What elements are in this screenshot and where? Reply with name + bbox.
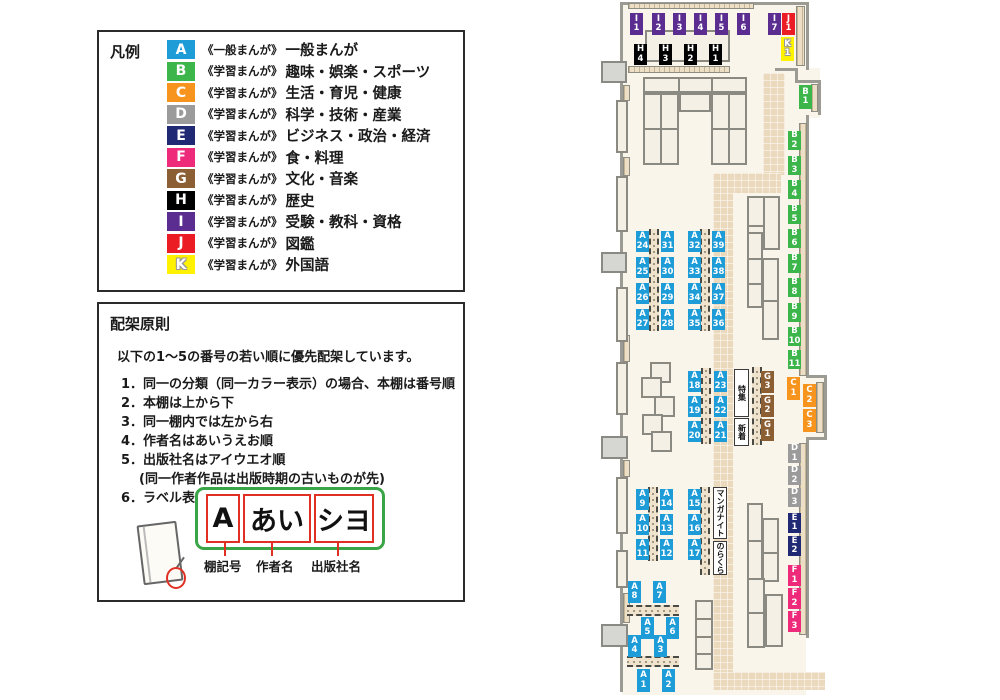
shelf-label-e1: E 1	[788, 513, 801, 533]
shelf-label-a25: A 25	[636, 257, 649, 278]
legend-row-f: F《学習まんが》食・料理	[167, 147, 431, 169]
door-fixture	[601, 252, 627, 273]
shelf-label-i2: I 2	[652, 13, 665, 35]
shelf-label-a18: A 18	[688, 371, 701, 392]
shelf-divider	[678, 78, 680, 92]
legend-scope: 《学習まんが》	[202, 192, 283, 208]
shelf-label-a23: A 23	[714, 371, 727, 392]
map-sign-マンガナイト: マンガナイト	[713, 487, 727, 539]
legend-row-d: D《学習まんが》科学・技術・産業	[167, 104, 431, 126]
wall-shelf-left	[616, 477, 628, 534]
shelf-label-a31: A 31	[661, 231, 674, 252]
shelf-row-a7-a8	[627, 605, 679, 616]
shelf-label-a14: A 14	[660, 489, 673, 510]
shelf-label-h3: H 3	[659, 44, 672, 65]
principles-rule-5: 5．出版社名はアイウエオ順	[121, 451, 459, 470]
shelf-label-b4: B 4	[788, 180, 801, 199]
shelf-label-a4: A 4	[628, 635, 641, 657]
shelf-label-d3: D 3	[788, 488, 801, 507]
category-chip-k: K	[167, 255, 195, 274]
principles-title: 配架原則	[110, 313, 170, 334]
legend-row-i: I《学習まんが》受験・教科・資格	[167, 211, 431, 233]
legend-row-e: E《学習まんが》ビジネス・政治・経済	[167, 125, 431, 147]
shelf-label-a37: A 37	[712, 283, 725, 304]
legend-scope: 《学習まんが》	[202, 128, 283, 144]
shelf-label-b1: B 1	[799, 85, 812, 109]
category-chip-f: F	[167, 148, 195, 167]
shelf-label-b6: B 6	[788, 229, 801, 248]
shelf-label-k1: K 1	[781, 37, 794, 61]
example-connector-line	[224, 543, 226, 556]
shelf-row-a3-a4	[627, 656, 679, 667]
shelf-label-f3: F 3	[788, 611, 801, 632]
shelf-label-a34: A 34	[688, 283, 701, 304]
legend-row-g: G《学習まんが》文化・音楽	[167, 168, 431, 190]
shelf-label-e2: E 2	[788, 536, 801, 556]
shelf-divider	[712, 128, 746, 130]
shelf-label-a39: A 39	[712, 231, 725, 252]
shelf-label-a11: A 11	[636, 539, 649, 560]
shelf-divider	[748, 258, 762, 260]
shelf-label-a9: A 9	[636, 489, 649, 510]
shelf-block-u-middle	[679, 93, 711, 112]
shelving-principles-panel: 配架原則 以下の1～5の番号の若い順に優先配架しています。 1．同一の分類（同一…	[97, 302, 465, 602]
principles-rule-1: 1．同一の分類（同一カラー表示）の場合、本棚は番号順	[121, 375, 459, 394]
shelf-label-a5: A 5	[641, 617, 654, 639]
wall-shelf-left	[616, 362, 628, 415]
example-caption-shelf-code: 棚記号	[204, 556, 242, 575]
book-spine	[143, 527, 152, 583]
category-chip-c: C	[167, 83, 195, 102]
shelf-label-a12: A 12	[660, 539, 673, 560]
shelf-divider	[748, 540, 762, 542]
principles-rule-2: 2．本棚は上から下	[121, 394, 459, 413]
shelf-label-a30: A 30	[661, 257, 674, 278]
shelf-label-b8: B 8	[788, 278, 801, 297]
shelf-divider	[696, 653, 712, 655]
walkway-bottom	[713, 672, 825, 690]
shelf-label-b7: B 7	[788, 254, 801, 273]
legend-panel: 凡例 A《一般まんが》一般まんが B《学習まんが》趣味・娯楽・スポーツ C《学習…	[97, 30, 465, 292]
shelf-label-h2: H 2	[684, 44, 697, 65]
legend-scope: 《学習まんが》	[202, 171, 283, 187]
library-floor-map-poster: 凡例 A《一般まんが》一般まんが B《学習まんが》趣味・娯楽・スポーツ C《学習…	[0, 0, 1000, 700]
door-fixture	[601, 61, 627, 83]
label-publisher-box: シヨ	[314, 494, 374, 543]
example-connector-line	[337, 543, 339, 556]
example-caption-author: 作者名	[256, 556, 294, 575]
shelf-label-g1: G 1	[761, 419, 774, 441]
legend-category: 文化・音楽	[286, 168, 359, 189]
shelf-label-a26: A 26	[636, 283, 649, 304]
legend-scope: 《学習まんが》	[202, 63, 283, 79]
shelf-label-d1: D 1	[788, 444, 801, 463]
legend-category: ビジネス・政治・経済	[286, 125, 431, 146]
shelf-label-i1: I 1	[630, 13, 643, 35]
category-chip-a: A	[167, 40, 195, 59]
shelf-label-a27: A 27	[636, 309, 649, 330]
legend-title: 凡例	[110, 41, 140, 62]
shelf-label-h1: H 1	[709, 44, 722, 65]
map-sign-特集: 特集	[734, 369, 749, 417]
map-wall-segment	[818, 83, 821, 115]
shelf-row-a9-a14	[648, 487, 658, 561]
shelf-divider	[748, 612, 764, 614]
legend-category: 一般まんが	[286, 39, 359, 60]
wall-shelf-left	[616, 176, 628, 232]
shelf-label-a2: A 2	[662, 669, 675, 692]
principles-intro: 以下の1～5の番号の若い順に優先配架しています。	[117, 346, 459, 365]
category-chip-h: H	[167, 191, 195, 210]
shelf-block-right-4	[747, 503, 763, 581]
walkway-turn	[713, 173, 781, 193]
shelf-label-c3: C 3	[803, 409, 816, 432]
shelf-label-a29: A 29	[661, 283, 674, 304]
legend-row-h: H《学習まんが》歴史	[167, 190, 431, 212]
legend-row-b: B《学習まんが》趣味・娯楽・スポーツ	[167, 61, 431, 83]
legend-scope: 《学習まんが》	[202, 235, 283, 251]
legend-row-a: A《一般まんが》一般まんが	[167, 39, 431, 61]
shelf-row-a32-a39	[700, 229, 710, 331]
legend-category: 図鑑	[286, 233, 315, 254]
legend-scope: 《一般まんが》	[202, 42, 283, 58]
walkway-top-right	[763, 73, 785, 175]
legend-row-k: K《学習まんが》外国語	[167, 254, 431, 276]
category-chip-e: E	[167, 126, 195, 145]
shelf-block-right-7	[765, 594, 783, 647]
shelf-label-j1: J 1	[782, 13, 795, 35]
shelf-label-a21: A 21	[714, 421, 727, 442]
shelf-divider	[763, 552, 778, 554]
wall-shelf-strip-below-h	[628, 66, 730, 73]
shelf-label-d2: D 2	[788, 466, 801, 485]
wall-shelf-strip-left	[623, 157, 630, 176]
door-fixture	[601, 436, 628, 459]
wall-shelf-strip-top	[628, 3, 754, 9]
category-chip-g: G	[167, 169, 195, 188]
legend-scope: 《学習まんが》	[202, 106, 283, 122]
shelf-label-b5: B 5	[788, 205, 801, 224]
wall-shelf-strip-left	[623, 460, 630, 477]
example-caption-publisher: 出版社名	[311, 556, 361, 575]
shelf-label-a32: A 32	[688, 231, 701, 252]
shelf-label-b11: B 11	[788, 350, 801, 369]
legend-list: A《一般まんが》一般まんが B《学習まんが》趣味・娯楽・スポーツ C《学習まんが…	[167, 39, 431, 276]
category-chip-j: J	[167, 234, 195, 253]
shelf-divider	[711, 78, 713, 92]
wall-shelf-left	[616, 100, 628, 153]
label-example-box: A あい シヨ	[195, 487, 385, 550]
principles-rule-3: 3．同一棚内では左から右	[121, 413, 459, 432]
shelf-label-a7: A 7	[653, 581, 666, 603]
shelf-label-a33: A 33	[688, 257, 701, 278]
shelf-divider	[748, 283, 762, 285]
category-chip-i: I	[167, 212, 195, 231]
principles-text: 以下の1～5の番号の若い順に優先配架しています。 1．同一の分類（同一カラー表示…	[99, 332, 459, 508]
shelf-label-i7: I 7	[768, 13, 781, 35]
wall-shelf-strip-left	[623, 85, 630, 101]
shelf-row-a24-a31	[649, 229, 659, 331]
map-wall-right-upper	[806, 2, 809, 70]
shelf-label-a8: A 8	[628, 581, 641, 603]
legend-category: 受験・教科・資格	[286, 211, 402, 232]
legend-category: 外国語	[286, 254, 330, 275]
shelf-label-b2: B 2	[788, 131, 801, 150]
shelf-divider	[696, 618, 712, 620]
shelf-label-h4: H 4	[634, 44, 647, 65]
category-chip-b: B	[167, 62, 195, 81]
shelf-block-bottom-stack	[695, 600, 713, 670]
example-connector-line	[271, 543, 273, 556]
shelf-label-a1: A 1	[637, 669, 650, 692]
legend-category: 趣味・娯楽・スポーツ	[286, 61, 431, 82]
shelf-row-a15-a17	[700, 487, 710, 575]
shelf-label-i5: I 5	[715, 13, 728, 35]
wall-shelf-strip-jk	[796, 6, 805, 66]
shelf-label-a13: A 13	[660, 514, 673, 535]
shelf-label-a36: A 36	[712, 309, 725, 330]
shelf-label-a28: A 28	[661, 309, 674, 330]
shelf-label-f2: F 2	[788, 588, 801, 609]
legend-row-j: J《学習まんが》図鑑	[167, 233, 431, 255]
shelf-label-b3: B 3	[788, 156, 801, 175]
shelf-label-a15: A 15	[688, 489, 701, 510]
shelf-divider	[748, 225, 763, 227]
door-fixture	[601, 624, 628, 647]
legend-category: 科学・技術・産業	[286, 104, 402, 125]
shelf-block-right-5	[762, 518, 779, 582]
legend-scope: 《学習まんが》	[202, 85, 283, 101]
reading-table	[651, 431, 672, 452]
legend-category: 生活・育児・健康	[286, 82, 402, 103]
principles-rule-4: 4．作者名はあいうえお順	[121, 432, 459, 451]
shelf-label-g2: G 2	[761, 395, 774, 417]
shelf-label-a17: A 17	[688, 539, 701, 560]
shelf-label-f1: F 1	[788, 565, 801, 586]
shelf-label-a16: A 16	[688, 514, 701, 535]
map-sign-新着: 新着	[734, 418, 749, 446]
legend-row-c: C《学習まんが》生活・育児・健康	[167, 82, 431, 104]
shelf-divider	[696, 636, 712, 638]
shelf-label-i4: I 4	[694, 13, 707, 35]
shelf-divider	[763, 300, 778, 302]
shelf-divider	[763, 197, 765, 249]
shelf-label-a19: A 19	[688, 396, 701, 417]
shelf-block-right-3	[762, 258, 779, 340]
wall-shelf-strip-c-alcove	[816, 382, 824, 433]
shelf-label-a10: A 10	[636, 514, 649, 535]
shelf-row-a18-a23	[701, 368, 711, 444]
label-shelf-code-box: A	[206, 494, 240, 543]
shelf-label-g3: G 3	[761, 371, 774, 393]
shelf-label-c1: C 1	[787, 377, 800, 400]
map-wall-alcove-bottom	[806, 437, 827, 440]
shelf-block-top-row	[643, 77, 747, 93]
legend-scope: 《学習まんが》	[202, 257, 283, 273]
reading-table	[641, 377, 662, 398]
shelf-label-b9: B 9	[788, 303, 801, 322]
legend-scope: 《学習まんが》	[202, 149, 283, 165]
shelf-label-i3: I 3	[673, 13, 686, 35]
wall-shelf-left	[616, 287, 628, 342]
shelf-label-i6: I 6	[737, 13, 750, 35]
shelf-divider	[644, 128, 678, 130]
shelf-block-right-2	[747, 232, 763, 308]
map-sign-のらくら: のらくら	[713, 541, 727, 575]
shelf-label-a3: A 3	[654, 635, 667, 657]
shelf-label-a24: A 24	[636, 231, 649, 252]
shelf-label-a35: A 35	[688, 309, 701, 330]
shelf-label-a6: A 6	[666, 617, 679, 639]
wall-shelf-left	[616, 550, 628, 588]
shelf-label-a20: A 20	[688, 421, 701, 442]
shelf-label-b10: B 10	[788, 327, 801, 346]
shelf-label-a22: A 22	[714, 396, 727, 417]
wall-shelf-strip-b1	[811, 84, 818, 112]
legend-scope: 《学習まんが》	[202, 214, 283, 230]
legend-category: 食・料理	[286, 147, 344, 168]
label-author-box: あい	[243, 494, 311, 543]
label-position-ring	[166, 567, 186, 589]
shelf-label-c2: C 2	[803, 384, 816, 407]
map-wall-alcove-right	[824, 375, 827, 440]
legend-category: 歴史	[286, 190, 315, 211]
category-chip-d: D	[167, 105, 195, 124]
shelf-label-a38: A 38	[712, 257, 725, 278]
